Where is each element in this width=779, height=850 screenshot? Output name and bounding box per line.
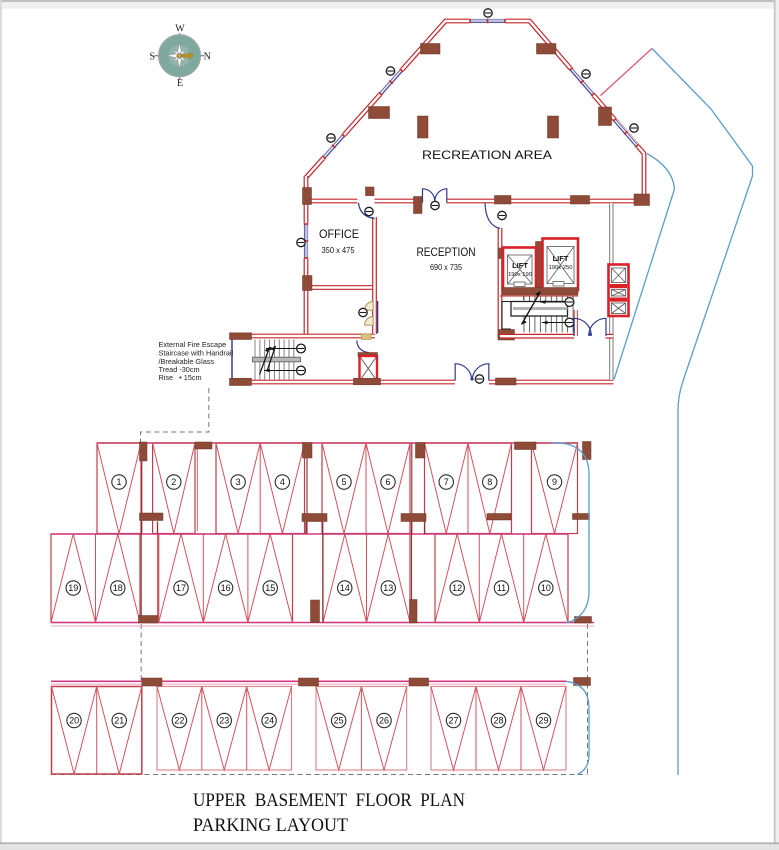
- svg-text:UPPER BASEMENT FLOOR PLAN: UPPER BASEMENT FLOOR PLAN: [193, 791, 465, 811]
- svg-text:E: E: [177, 78, 183, 89]
- svg-text:1: 1: [116, 477, 121, 487]
- svg-text:10: 10: [541, 583, 551, 593]
- svg-text:2: 2: [171, 477, 176, 487]
- svg-text:RECEPTION: RECEPTION: [417, 247, 476, 259]
- svg-text:N: N: [204, 51, 211, 62]
- svg-text:21: 21: [114, 716, 124, 726]
- svg-text:350 x 475: 350 x 475: [322, 245, 355, 255]
- svg-text:LIFT: LIFT: [553, 254, 569, 263]
- svg-text:9: 9: [552, 477, 557, 487]
- svg-text:PARKING LAYOUT: PARKING LAYOUT: [193, 816, 348, 836]
- svg-text:20: 20: [69, 716, 79, 726]
- svg-text:11: 11: [497, 583, 506, 593]
- svg-text:24: 24: [264, 716, 274, 726]
- svg-text:5: 5: [341, 477, 346, 487]
- svg-text:13: 13: [383, 583, 393, 593]
- svg-text:28: 28: [493, 716, 503, 726]
- svg-text:3: 3: [236, 477, 241, 487]
- svg-text:W: W: [175, 24, 185, 35]
- svg-text:7: 7: [444, 477, 449, 487]
- svg-text:RECREATION AREA: RECREATION AREA: [422, 148, 552, 162]
- svg-text:LIFT: LIFT: [512, 261, 528, 270]
- svg-text:27: 27: [448, 716, 458, 726]
- svg-text:12: 12: [452, 583, 462, 593]
- svg-text:17: 17: [176, 583, 186, 593]
- svg-text:19: 19: [68, 583, 78, 593]
- svg-text:4: 4: [280, 477, 285, 487]
- svg-text:8: 8: [487, 477, 492, 487]
- svg-text:OFFICE: OFFICE: [319, 227, 359, 241]
- svg-text:690 x 735: 690 x 735: [430, 262, 462, 272]
- svg-text:22: 22: [174, 716, 184, 726]
- svg-text:Rise • 15cm: Rise • 15cm: [159, 373, 202, 382]
- svg-text:190x 250: 190x 250: [549, 265, 573, 271]
- svg-text:6: 6: [385, 477, 390, 487]
- svg-text:15: 15: [265, 583, 275, 593]
- svg-text:29: 29: [538, 716, 548, 726]
- svg-text:23: 23: [219, 716, 229, 726]
- svg-text:25: 25: [334, 716, 344, 726]
- svg-text:18: 18: [113, 583, 123, 593]
- svg-text:S: S: [150, 51, 156, 62]
- svg-text:16: 16: [221, 583, 231, 593]
- svg-text:14: 14: [340, 583, 350, 593]
- svg-text:190x 190: 190x 190: [508, 272, 532, 278]
- svg-text:26: 26: [379, 716, 389, 726]
